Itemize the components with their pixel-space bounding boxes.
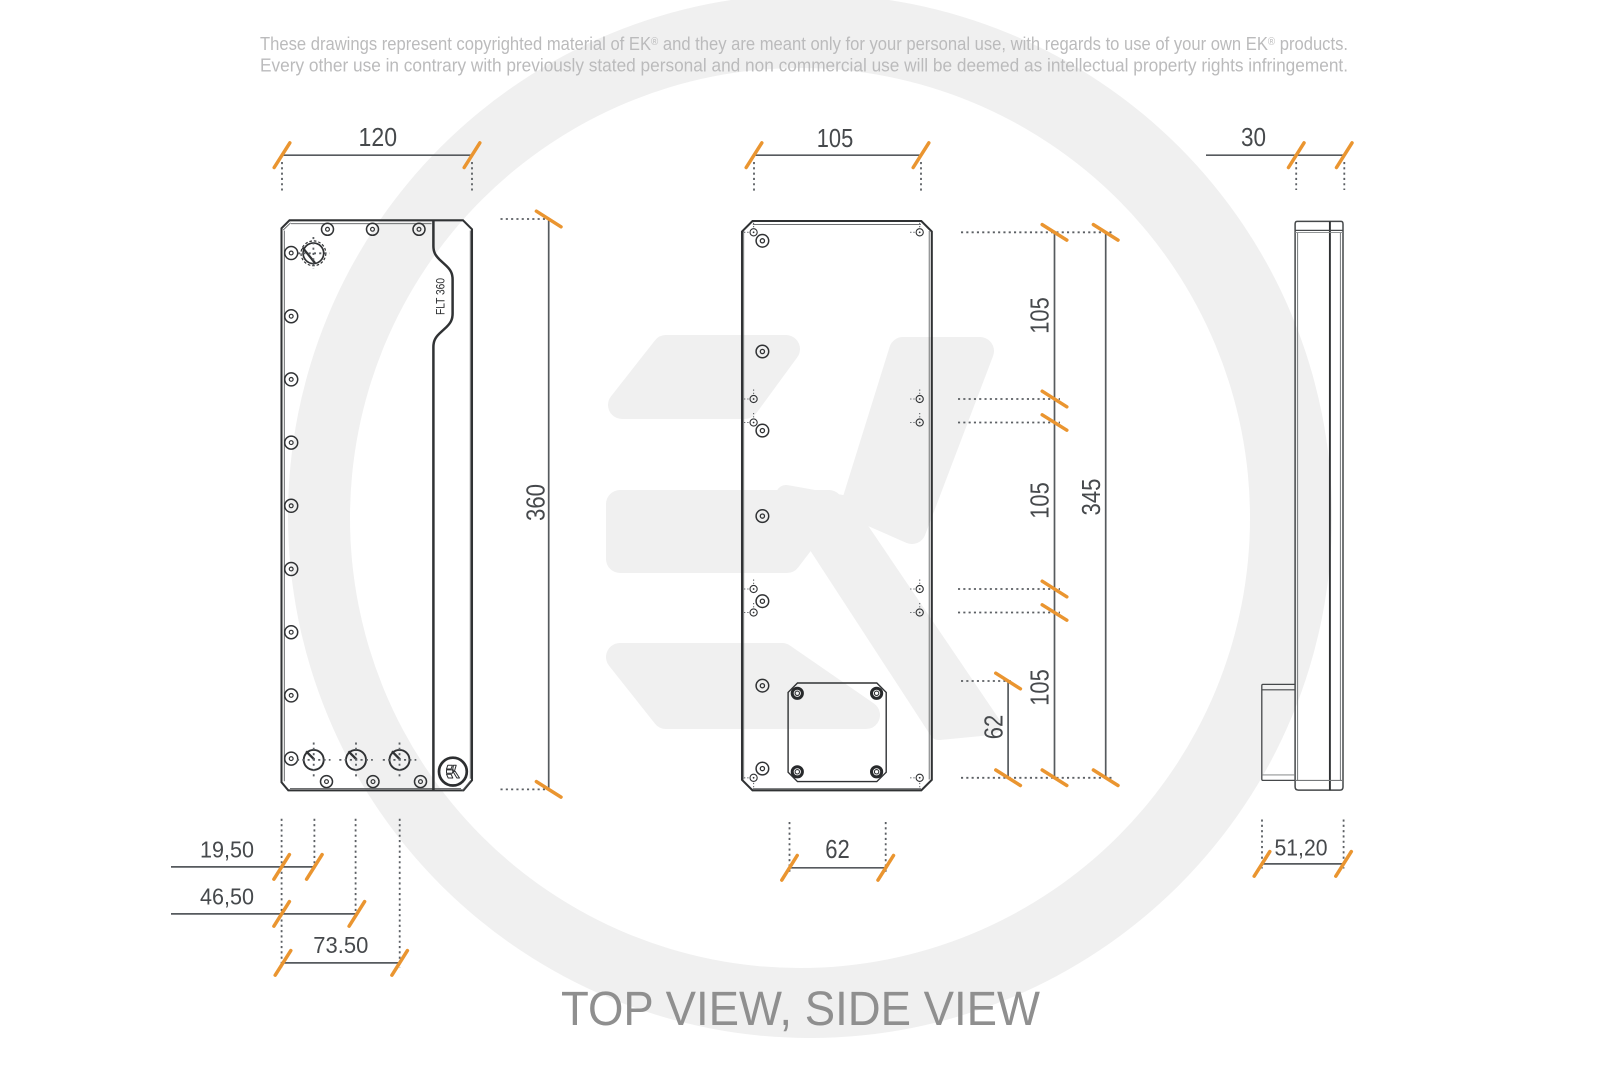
svg-text:105: 105 — [1025, 297, 1055, 334]
svg-text:30: 30 — [1241, 122, 1266, 152]
svg-text:These drawings represent copyr: These drawings represent copyrighted mat… — [260, 33, 1348, 54]
svg-text:51,20: 51,20 — [1275, 834, 1328, 860]
svg-text:Every other use in contrary wi: Every other use in contrary with previou… — [260, 55, 1348, 76]
svg-text:62: 62 — [979, 715, 1009, 740]
svg-text:105: 105 — [1025, 482, 1055, 519]
svg-text:360: 360 — [521, 484, 551, 521]
svg-text:105: 105 — [1025, 669, 1055, 706]
svg-text:FLT 360: FLT 360 — [436, 278, 448, 315]
svg-text:73.50: 73.50 — [313, 932, 368, 958]
svg-text:120: 120 — [359, 122, 398, 152]
svg-text:345: 345 — [1076, 479, 1106, 516]
svg-text:62: 62 — [825, 834, 850, 864]
svg-text:TOP VIEW, SIDE VIEW: TOP VIEW, SIDE VIEW — [561, 983, 1041, 1036]
svg-text:46,50: 46,50 — [200, 883, 254, 909]
svg-text:19,50: 19,50 — [200, 836, 254, 862]
svg-text:105: 105 — [817, 123, 854, 153]
